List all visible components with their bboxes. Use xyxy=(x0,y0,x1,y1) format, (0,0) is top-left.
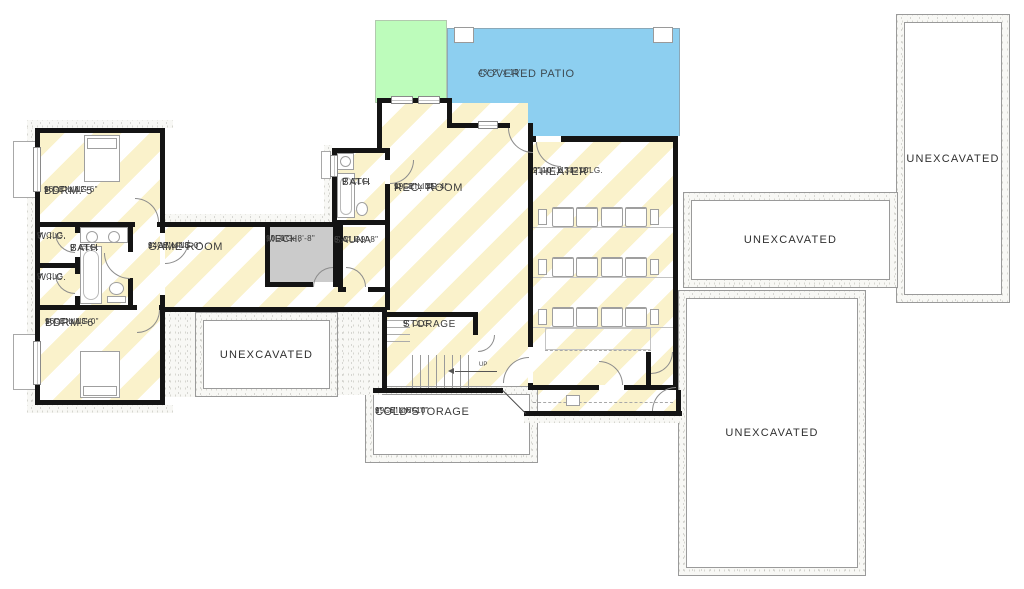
riser-line xyxy=(533,227,673,228)
unexcavated-box-bottom-right: UNEXCAVATED xyxy=(678,290,866,576)
room-dims: 16'-0" x 12'-6" xyxy=(44,185,98,194)
rec-room-floor xyxy=(390,148,528,310)
wall xyxy=(75,227,80,233)
foundation-wall xyxy=(27,405,173,413)
room-dims: 6'-0" x 9'-8" xyxy=(334,235,378,244)
wall xyxy=(338,287,346,292)
wall xyxy=(40,222,135,227)
side-table-icon xyxy=(650,209,659,225)
basement-floor-plan: UNEXCAVATED UNEXCAVATED UNEXCAVATED UNEX… xyxy=(0,0,1024,589)
bathtub-inner-icon xyxy=(83,250,99,300)
stairs-up-label: UP xyxy=(479,362,487,368)
window-icon xyxy=(33,341,41,385)
wall xyxy=(157,222,165,227)
theater-seat-icon xyxy=(552,257,574,277)
unexcavated-box-top-right: UNEXCAVATED xyxy=(896,14,1010,303)
wall xyxy=(524,411,682,416)
sink-icon xyxy=(86,231,98,243)
wall xyxy=(533,385,599,390)
cold-storage-interior xyxy=(373,394,530,455)
foundation-wall xyxy=(165,312,195,397)
wall xyxy=(265,222,338,227)
sump-pit-icon xyxy=(566,395,580,406)
wall xyxy=(35,128,165,133)
theater-seat-icon xyxy=(625,307,647,327)
wall xyxy=(165,307,387,312)
toilet-tank-icon xyxy=(107,296,126,303)
side-table-icon xyxy=(538,259,547,275)
window-icon xyxy=(478,121,498,129)
pillow-icon xyxy=(83,386,117,396)
theater-platform-dashed-line xyxy=(545,350,651,351)
window-icon xyxy=(391,96,413,104)
room-ceiling: 9' CLG. xyxy=(70,243,99,252)
unexcavated-interior: UNEXCAVATED xyxy=(686,298,858,568)
toilet-icon xyxy=(109,282,124,295)
theater-seat-icon xyxy=(552,307,574,327)
unexcavated-interior: UNEXCAVATED xyxy=(691,200,890,280)
wall xyxy=(40,263,80,268)
wall xyxy=(382,312,478,317)
room-dims: 19'-8" x 25'-4" xyxy=(394,182,448,191)
wall xyxy=(382,312,387,392)
riser-line xyxy=(533,277,673,278)
room-dims: 43'-2" x 15' xyxy=(478,68,521,77)
patio-column xyxy=(653,27,673,43)
utility-dashed-line xyxy=(533,402,673,403)
window-icon xyxy=(33,147,41,192)
theater-seat-icon xyxy=(576,207,598,227)
foundation-wall xyxy=(338,312,382,395)
side-table-icon xyxy=(538,209,547,225)
theater-seat-icon xyxy=(625,257,647,277)
wall xyxy=(165,222,265,227)
toilet-icon xyxy=(356,202,368,216)
foundation-wall xyxy=(27,120,173,128)
cold-storage-box xyxy=(365,386,538,463)
wall xyxy=(385,184,390,310)
room-dims: 21'-0" x 34'-10" xyxy=(533,166,591,175)
theater-platform xyxy=(545,328,651,350)
room-dims: 14'-6" x 13'-0" xyxy=(148,241,202,250)
unexcavated-box-mid-right: UNEXCAVATED xyxy=(683,192,898,288)
room-dims: 10'-0" x 8'-8" xyxy=(266,234,315,243)
room-ceiling: 9' CLG. xyxy=(403,319,432,328)
sink-icon xyxy=(108,231,120,243)
theater-seat-icon xyxy=(625,207,647,227)
stair-arrow-head xyxy=(448,368,454,374)
room-dims: 19'-6" x 6'-10" xyxy=(375,406,429,415)
wall xyxy=(75,268,80,274)
wall xyxy=(561,136,678,142)
wall xyxy=(377,98,452,103)
side-table-icon xyxy=(538,309,547,325)
theater-seat-icon xyxy=(601,307,623,327)
patio-column xyxy=(454,27,474,43)
wall xyxy=(673,142,678,390)
unexcavated-label: UNEXCAVATED xyxy=(906,153,999,165)
theater-seat-icon xyxy=(601,257,623,277)
wall xyxy=(385,148,390,160)
side-table-icon xyxy=(650,309,659,325)
wall xyxy=(40,305,137,310)
wall xyxy=(128,227,133,252)
wall xyxy=(377,103,382,153)
room-ceiling: 9' CLG xyxy=(37,272,63,281)
pillow-icon xyxy=(87,138,117,149)
unexcavated-interior: UNEXCAVATED xyxy=(203,320,330,389)
room-dims: 16'-0" x 13'-0" xyxy=(45,317,99,326)
unexcavated-label: UNEXCAVATED xyxy=(725,427,818,439)
unexcavated-label: UNEXCAVATED xyxy=(744,234,837,246)
wall xyxy=(368,287,385,292)
wall xyxy=(373,388,503,393)
foundation-wall xyxy=(165,214,332,222)
lawn-area xyxy=(375,20,447,103)
sink-icon xyxy=(340,156,351,167)
wall xyxy=(473,317,478,335)
room-ceiling: 9' CLG. xyxy=(37,231,66,240)
theater-seat-icon xyxy=(552,207,574,227)
foundation-wall xyxy=(524,416,684,423)
unexcavated-interior: UNEXCAVATED xyxy=(904,22,1002,295)
theater-seat-icon xyxy=(576,307,598,327)
theater-seat-icon xyxy=(576,257,598,277)
wall xyxy=(528,123,533,347)
stair-arrow-line xyxy=(455,371,497,372)
window-icon xyxy=(330,155,338,177)
unexcavated-label: UNEXCAVATED xyxy=(220,349,313,361)
wall xyxy=(35,400,165,405)
unexcavated-box-bottom-left: UNEXCAVATED xyxy=(195,312,338,397)
room-ceiling: 9' CLG. xyxy=(342,177,371,186)
wall xyxy=(160,128,165,233)
wall xyxy=(265,282,313,287)
window-icon xyxy=(418,96,440,104)
covered-patio-area-lower xyxy=(533,125,680,136)
side-table-icon xyxy=(650,259,659,275)
theater-seat-icon xyxy=(601,207,623,227)
